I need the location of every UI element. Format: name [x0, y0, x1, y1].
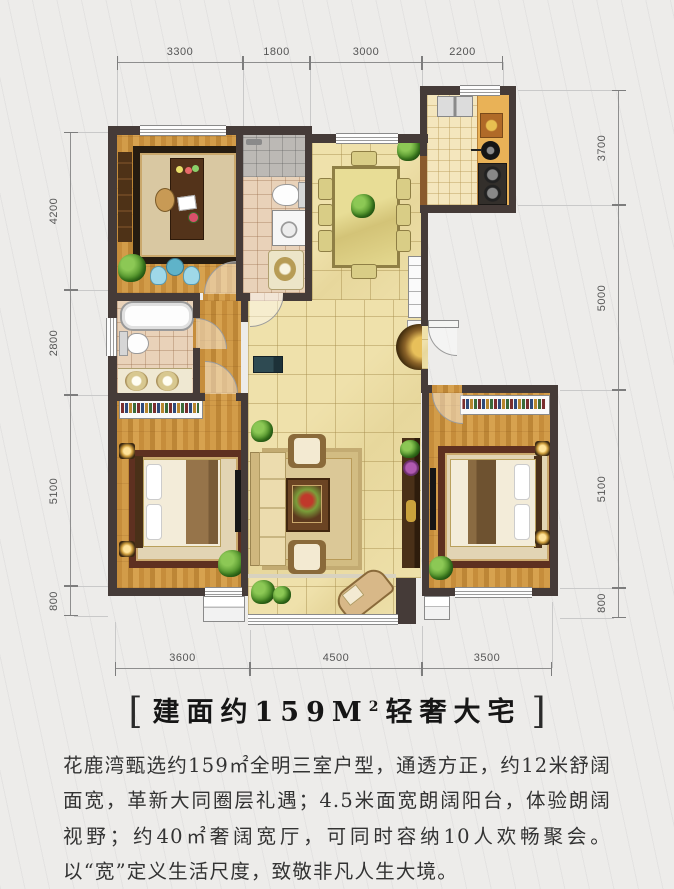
- dim-right-3700: 3700: [618, 90, 619, 205]
- wall-left-outer: [108, 126, 117, 596]
- washing-machine: [272, 210, 306, 246]
- dim-top-2200: 2200: [422, 62, 503, 63]
- bedroom1-wall-right: [241, 393, 248, 596]
- extension-line: [560, 390, 614, 391]
- study-chair: [155, 188, 175, 212]
- bedroom1-nightstand-lamp: [119, 443, 135, 459]
- wall-mid-3: [283, 293, 312, 301]
- cabinet-flowers: [403, 460, 419, 476]
- extension-line: [74, 616, 108, 617]
- extension-line: [74, 290, 108, 291]
- headline-bracket-right: ]: [522, 691, 556, 732]
- cabinet-vase: [406, 500, 416, 522]
- extension-line: [560, 618, 614, 619]
- stove: [478, 163, 507, 205]
- dining-chair: [396, 230, 411, 252]
- extension-line: [560, 588, 614, 589]
- dining-chair: [396, 178, 411, 200]
- coffee-table-art: [292, 485, 322, 523]
- dim-bottom-3600: 3600: [115, 668, 250, 669]
- dim-left-800: 800: [70, 586, 71, 616]
- wall-mid-1: [108, 293, 200, 301]
- kitchen-wall-bottom: [420, 205, 516, 213]
- headline-text: 建面约159M: [153, 697, 369, 728]
- dim-bottom-3500: 3500: [422, 668, 552, 669]
- kitchen-window: [460, 85, 500, 96]
- dining-chair: [318, 204, 333, 226]
- description-paragraph: 花鹿湾甄选约159㎡全明三室户型，通透方正，约12米舒阔面宽，革新大同圈层礼遇；…: [63, 748, 611, 889]
- dim-right-5000: 5000: [618, 205, 619, 390]
- study-wardrobe: [118, 152, 132, 242]
- bedroom1-nightstand-lamp: [119, 541, 135, 557]
- entry-door-arc: [428, 327, 457, 356]
- bedroom2-books: [462, 399, 546, 409]
- bath-a-sink-basin: [274, 257, 296, 281]
- toilet-a-bowl: [272, 184, 299, 206]
- bedroom2-blanket: [468, 460, 496, 544]
- toilet-b-bowl: [127, 333, 149, 354]
- extension-line: [503, 62, 504, 86]
- vanity-sink-left: [125, 371, 148, 391]
- bedroom2-pillow: [514, 504, 530, 540]
- floorplan-flyer: 3300 1800 3000 2200 3600 4500 3500 4200 …: [0, 0, 674, 889]
- bathtub: [120, 301, 194, 331]
- bedroom2-bay-window: [424, 596, 450, 620]
- study-window: [140, 125, 226, 136]
- balcony-plant-1: [251, 580, 275, 604]
- study-door-threshold: [203, 293, 236, 301]
- headline-bracket-left: [: [118, 691, 152, 732]
- dim-bottom-4500: 4500: [250, 668, 422, 669]
- extension-line: [74, 132, 108, 133]
- bedroom1-blanket: [186, 460, 218, 544]
- bedroom2-wall-bottom-b: [530, 588, 558, 596]
- master-bath-wall-right-b: [193, 348, 200, 393]
- desk-paper: [177, 195, 197, 211]
- tea-chair-right: [183, 266, 200, 285]
- vanity-sink-right: [156, 371, 179, 391]
- headline: [建面约159M2轻奢大宅]: [0, 690, 674, 732]
- extension-line: [243, 62, 244, 126]
- dim-right-5100: 5100: [618, 390, 619, 588]
- bedroom1-pillow: [146, 504, 162, 540]
- entry-threshold: [421, 326, 428, 369]
- dining-chair: [351, 264, 377, 279]
- kitchen-sink: [437, 96, 473, 117]
- bedroom2-wall-right: [550, 385, 558, 596]
- dining-centerpiece: [351, 194, 375, 218]
- hall-sideboard: [253, 356, 283, 373]
- shoe-cabinet: [408, 256, 422, 318]
- bedroom2-wall-left: [422, 385, 429, 596]
- extension-line: [552, 602, 553, 668]
- master-bath-window: [106, 318, 117, 356]
- armchair-top-seat: [294, 438, 320, 464]
- kitchen-door-sill: [420, 156, 427, 205]
- bedroom2-plant: [429, 556, 453, 580]
- wall-bath-dining-divider: [305, 134, 312, 300]
- vestibule-stub: [241, 300, 248, 322]
- rug-flower: [188, 212, 199, 223]
- dim-left-5100: 5100: [70, 395, 71, 586]
- bedroom1-bay-window: [203, 596, 245, 622]
- dining-chair: [318, 178, 333, 200]
- balcony-plant-2: [273, 586, 291, 604]
- cabinet-plant: [400, 440, 420, 458]
- tea-table: [166, 258, 184, 276]
- extension-line: [518, 90, 614, 91]
- study-plant: [118, 254, 146, 282]
- kitchen-wall-left: [420, 86, 427, 156]
- bedroom1-pillow: [146, 464, 162, 500]
- bedroom2-wall-bottom-a: [422, 588, 455, 596]
- extension-line: [74, 395, 108, 396]
- dim-left-2800: 2800: [70, 290, 71, 395]
- bedroom2-nightstand-lamp: [535, 530, 550, 545]
- extension-line: [74, 586, 108, 587]
- master-bath-wall-right-a: [193, 300, 200, 318]
- bedroom1-wall-top-a: [108, 393, 205, 401]
- bedroom1-headboard: [135, 456, 143, 548]
- bedroom2-wall-top-b: [462, 385, 558, 393]
- armchair-bottom-seat: [294, 544, 320, 570]
- shower-head: [246, 139, 262, 145]
- wall-study-bath-divider: [236, 126, 243, 300]
- kitchen-deco-box: [480, 113, 503, 138]
- entry-door-leaf: [428, 320, 459, 328]
- kitchen-wall-right: [509, 86, 516, 212]
- bedroom2-tv: [430, 468, 436, 530]
- wok-pan: [481, 141, 500, 160]
- hall-wall-right-upper: [421, 213, 428, 326]
- wok-handle: [471, 149, 482, 151]
- dim-top-3300: 3300: [117, 62, 243, 63]
- balcony-glazing: [248, 614, 398, 625]
- balcony-wall-right: [396, 578, 416, 624]
- tea-chair-left: [150, 266, 167, 285]
- dining-chair: [318, 230, 333, 252]
- living-corner-plant: [251, 420, 273, 442]
- dining-chair: [351, 151, 377, 166]
- sofa-seat: [259, 452, 286, 566]
- desk-flowers: [176, 166, 183, 173]
- bedroom1-door-threshold: [205, 393, 236, 401]
- dim-right-800: 800: [618, 588, 619, 618]
- dining-chair: [396, 204, 411, 226]
- bedroom2-door-threshold: [432, 385, 462, 393]
- dim-top-1800: 1800: [243, 62, 310, 63]
- headline-superscript: 2: [369, 699, 386, 715]
- bedroom2-nightstand-lamp: [535, 441, 550, 456]
- dim-top-3000: 3000: [310, 62, 422, 63]
- dining-window: [336, 133, 398, 144]
- bedroom1-wall-bottom-a: [108, 588, 205, 596]
- bedroom1-books: [121, 403, 199, 413]
- headline-text-suffix: 轻奢大宅: [386, 697, 522, 728]
- extension-line: [310, 62, 311, 134]
- dim-left-4200: 4200: [70, 132, 71, 290]
- extension-line: [518, 205, 614, 206]
- bedroom2-pillow: [514, 464, 530, 500]
- bedroom2-window: [455, 587, 532, 598]
- extension-line: [117, 62, 118, 126]
